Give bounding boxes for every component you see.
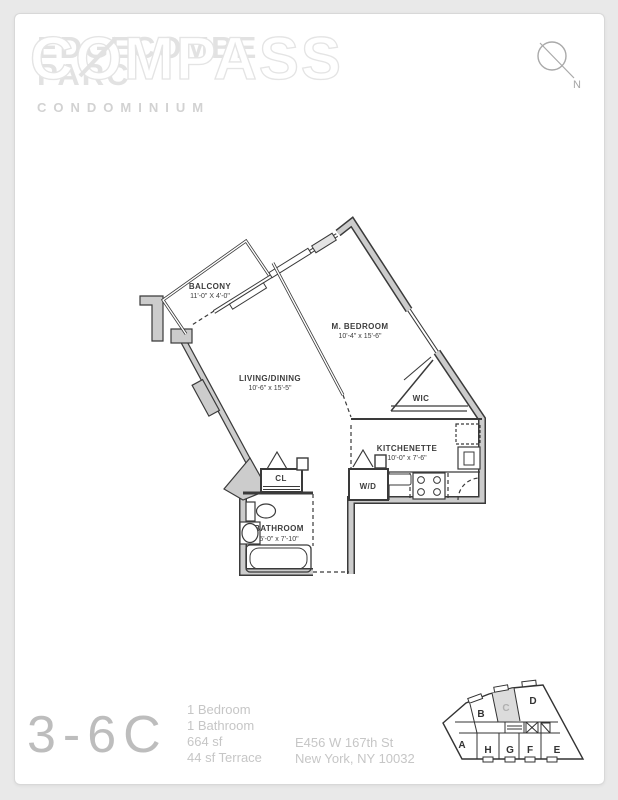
floorplan-page: EDGECOMBEPARC COMPASS CONDOMINIUM 3-6C 1…: [0, 0, 618, 800]
room-label-bathroom: BATHROOM: [254, 524, 304, 533]
north-compass-icon: [538, 42, 574, 78]
room-dims-bedroom: 10'-4" x 15'-6": [338, 333, 382, 340]
wall-pieces: [140, 296, 268, 500]
wd-closet: [349, 450, 388, 500]
room-dims-kitchenette: 10'-0" x 7'-6": [387, 455, 427, 462]
stove: [413, 473, 445, 499]
cl-closet: [261, 452, 308, 492]
keyplan-unit-e: E: [554, 745, 561, 756]
room-label-wic: WIC: [413, 394, 430, 403]
sink-bowl: [242, 524, 258, 543]
floorplan-drawing: N: [0, 0, 618, 800]
logo-needle-icon: [80, 38, 116, 76]
keyplan: A B C D H G F E: [443, 680, 583, 762]
toilet-bowl: [257, 504, 276, 518]
keyplan-unit-g: G: [506, 745, 514, 756]
room-label-bedroom: M. BEDROOM: [332, 322, 389, 331]
room-dims-balcony: 11'-0" X 4'-0": [190, 293, 230, 300]
room-label-balcony: BALCONY: [189, 282, 232, 291]
exterior-walls: [184, 222, 482, 574]
room-label-cl: CL: [275, 474, 286, 483]
room-label-living: LIVING/DINING: [239, 374, 301, 383]
keyplan-unit-h: H: [484, 745, 491, 756]
keyplan-unit-b: B: [477, 709, 484, 720]
room-dims-bathroom: 5'-0" x 7'-10": [259, 536, 299, 543]
keyplan-unit-f: F: [527, 745, 533, 756]
toilet-tank: [246, 502, 255, 521]
north-label: N: [573, 79, 581, 91]
keyplan-stairs-icon: [505, 722, 524, 733]
keyplan-unit-a: A: [458, 740, 465, 751]
room-dims-living: 10'-6" x 15'-5": [248, 385, 292, 392]
keyplan-unit-d: D: [529, 696, 536, 707]
room-label-wd: W/D: [360, 482, 377, 491]
room-label-kitchenette: KITCHENETTE: [377, 444, 438, 453]
keyplan-unit-c: C: [502, 703, 509, 714]
windows: [214, 233, 437, 352]
